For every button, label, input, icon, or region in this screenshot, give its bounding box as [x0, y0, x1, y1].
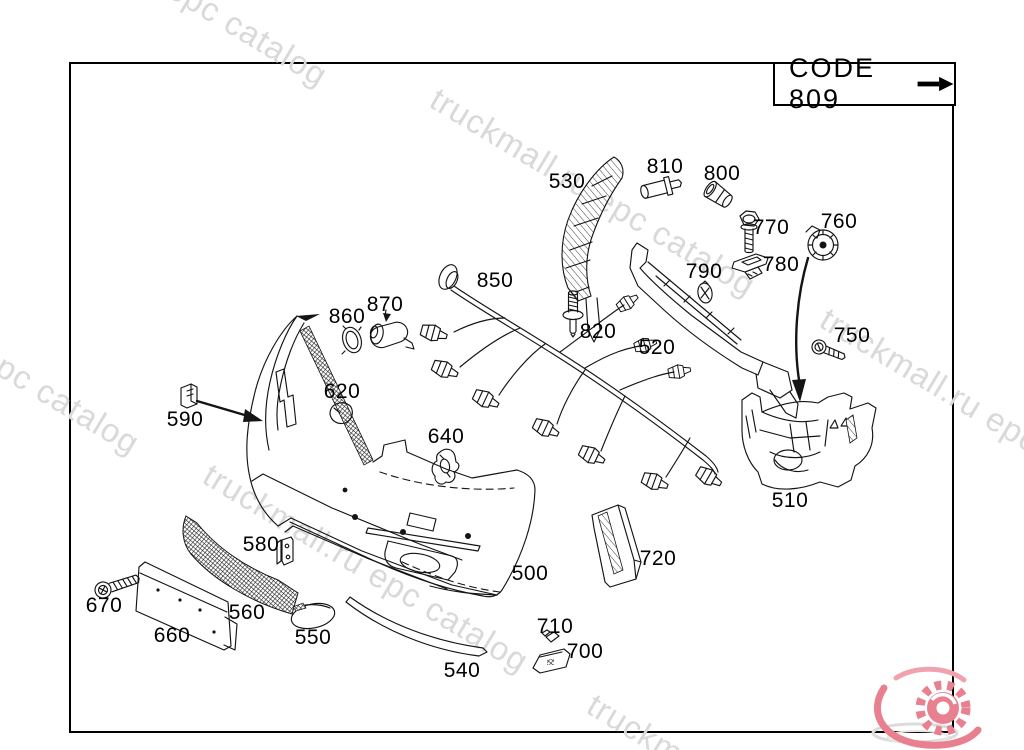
part-drawing-800 — [702, 179, 735, 210]
part-drawing-520 — [630, 243, 798, 418]
part-drawing-560 — [183, 516, 298, 614]
brand-logo: TRUCKMALLPARTS — [873, 669, 1010, 750]
part-drawing-720 — [592, 505, 641, 587]
part-drawing-770 — [740, 211, 759, 253]
part-drawing-790 — [696, 281, 713, 304]
part-drawing-550 — [289, 600, 337, 633]
part-drawing-530 — [562, 157, 623, 342]
part-drawing-780 — [732, 254, 768, 279]
part-drawing-870 — [369, 310, 414, 349]
part-drawing-540 — [346, 597, 487, 656]
part-drawing-510 — [742, 393, 876, 489]
code-box: CODE 809 — [773, 62, 956, 106]
part-drawing-850 — [419, 262, 724, 494]
right-arrow-icon — [916, 74, 954, 94]
catalog-page: truckmall.ru epc catalog truckmall.ru ep… — [0, 0, 1024, 750]
part-drawing-710 — [542, 630, 559, 642]
part-drawing-580 — [277, 537, 293, 565]
part-drawing-670 — [93, 571, 142, 600]
part-drawing-760 — [792, 226, 838, 402]
part-drawing-810 — [639, 174, 684, 202]
part-drawing-860 — [339, 325, 364, 355]
part-drawing-500 — [247, 314, 535, 597]
part-drawing-750 — [810, 338, 848, 364]
code-label: CODE 809 — [789, 53, 906, 115]
part-drawing-700 — [533, 649, 570, 673]
part-drawing-640 — [432, 449, 459, 484]
part-drawing-590 — [181, 384, 263, 422]
